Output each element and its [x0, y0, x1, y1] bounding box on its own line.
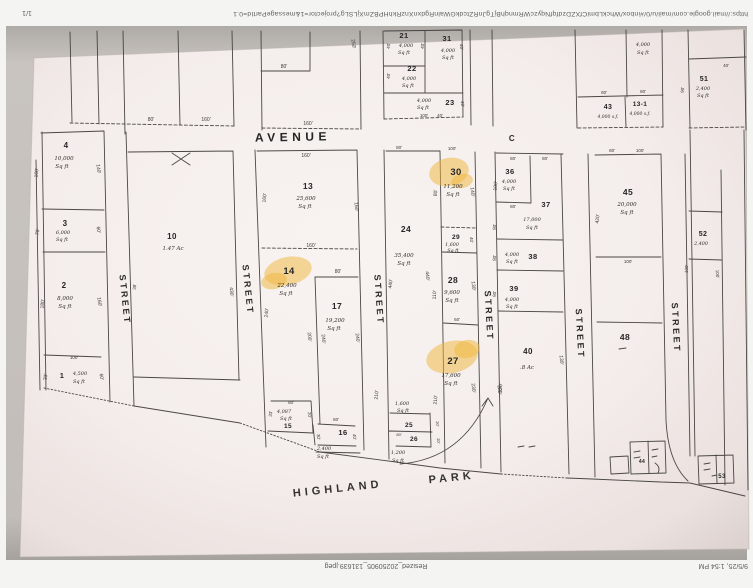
lot-23: 23 [445, 98, 454, 107]
avenue-c-label: C [509, 134, 517, 143]
map-text-4000: 4,000 [504, 252, 520, 258]
map-text-4500: 4,500 [72, 371, 88, 377]
footer-timestamp: 9/5/25, 1:54 PM [662, 561, 748, 570]
map-text-Sqft: Sq ft [58, 304, 72, 310]
map-text-80: 80' [510, 204, 516, 209]
map-text-1600: 1,600 [395, 401, 410, 407]
lot-25: 25 [405, 422, 413, 429]
map-text-80: 80' [148, 117, 155, 123]
map-text-22400: 22,400 [276, 283, 297, 289]
map-text-80: 80' [281, 64, 288, 70]
map-text-8Ac: .8 Ac [520, 365, 534, 371]
map-text-Sqft: Sq ft [506, 259, 519, 265]
map-text-Sqft: Sq ft [446, 192, 460, 198]
map-text-Sqft: Sq ft [298, 204, 312, 210]
map-text-40: 40' [459, 44, 464, 50]
map-text-60: 60' [454, 317, 460, 322]
map-text-180: 180' [40, 299, 47, 309]
map-text-240: 240' [354, 333, 361, 343]
map-text-100: 100' [70, 355, 79, 360]
map-text-4000: 4,000 [635, 42, 651, 48]
map-text-100: 100' [493, 181, 500, 191]
footer-filename: Resized_20250905_131639.jpeg [295, 561, 457, 570]
map-text-20: 20' [435, 421, 440, 427]
map-text-40: 40' [437, 113, 443, 118]
map-text-420: 420' [595, 214, 602, 224]
map-text-200: 200' [306, 332, 313, 342]
map-text-100: 100' [420, 113, 429, 118]
lot-1: 1 [60, 371, 65, 380]
map-text-250: 250' [350, 39, 357, 49]
map-text-40: 40' [352, 434, 358, 440]
map-text-80: 80' [492, 224, 497, 230]
map-text-140: 140' [469, 187, 476, 197]
lot-10: 10 [167, 232, 177, 241]
map-text-100: 100' [636, 148, 645, 153]
lot-30: 30 [450, 167, 461, 178]
lot-14: 14 [283, 266, 295, 277]
map-text-4000: 4,000 [440, 48, 456, 54]
map-text-Sqft: Sq ft [444, 381, 458, 387]
map-text-160: 160' [301, 153, 310, 159]
map-text-Sqft: Sq ft [73, 379, 86, 385]
map-text-38: 38' [132, 284, 138, 290]
map-text-80: 80' [433, 189, 439, 196]
map-text-Sqft: Sq ft [447, 248, 459, 254]
map-text-40: 40' [386, 43, 391, 49]
map-text-40: 40' [469, 237, 474, 243]
map-text-Sqft: Sq ft [279, 291, 293, 297]
map-text-4000: 4,000 [416, 98, 432, 104]
map-text-130: 130' [558, 355, 565, 365]
map-text-160: 160' [201, 117, 210, 123]
lot-28: 28 [448, 275, 458, 285]
lot-36: 36 [505, 167, 514, 176]
map-text-17600: 17,600 [441, 373, 461, 379]
map-text-1200: 1,200 [391, 450, 406, 456]
map-text-4087: 4,087 [276, 409, 292, 415]
map-text-80: 80' [333, 417, 339, 422]
map-text-4000sf: 4,000 s.f. [629, 111, 652, 117]
map-text-Sqft: Sq ft [442, 55, 455, 61]
map-text-4000: 4,000 [401, 76, 417, 82]
map-text-Sqft: Sq ft [327, 326, 341, 332]
map-text-120: 120' [498, 383, 505, 393]
map-text-60: 60' [98, 373, 105, 380]
map-text-Sqft: Sq ft [55, 164, 69, 170]
map-text-440: 440' [424, 271, 431, 281]
lot-40: 40 [523, 347, 533, 356]
lot-3: 3 [63, 219, 68, 228]
map-text-30: 30' [316, 434, 322, 440]
map-text-40: 40' [386, 73, 391, 79]
map-text-240: 240' [320, 334, 327, 344]
map-text-160: 160' [262, 193, 269, 203]
map-text-19200: 19,200 [325, 318, 345, 324]
lot-21: 21 [399, 31, 408, 40]
map-text-160: 160' [306, 243, 315, 249]
map-text-1600: 1,600 [445, 242, 459, 248]
map-text-160: 160' [353, 202, 360, 212]
map-text-9600: 9,600 [444, 290, 460, 296]
map-text-17000: 17,000 [523, 217, 541, 223]
map-text-100: 100' [715, 270, 721, 279]
map-text-70: 70' [35, 228, 42, 235]
lot-53: 53 [718, 474, 726, 480]
map-text-Sqft: Sq ft [402, 83, 415, 89]
lot-16: 16 [338, 428, 347, 437]
map-text-80: 80' [609, 148, 615, 153]
lot-29: 29 [452, 234, 460, 241]
lot-27: 27 [447, 356, 458, 367]
map-text-440: 440' [388, 279, 395, 289]
map-text-140: 140' [95, 164, 102, 174]
map-text-80: 80' [542, 156, 548, 161]
map-text-Sqft: Sq ft [392, 458, 405, 464]
map-text-8000: 8,000 [57, 296, 73, 302]
map-text-160: 160' [96, 297, 103, 307]
lot-13-1: 13-1 [633, 101, 648, 108]
map-text-160: 160' [34, 168, 41, 178]
map-text-Sqft: Sq ft [397, 261, 411, 267]
map-text-147Ac: 1.47 Ac [162, 246, 183, 252]
map-text-Sqft: Sq ft [697, 93, 710, 99]
map-text-80: 80' [335, 269, 342, 275]
map-text-Sqft: Sq ft [620, 210, 634, 216]
map-text-20: 20' [307, 412, 313, 418]
map-text-4000: 4,000 [504, 297, 520, 303]
lot-24: 24 [401, 224, 411, 234]
lot-37: 37 [541, 200, 550, 209]
map-text-80: 80' [288, 400, 294, 405]
map-text-430: 430' [228, 287, 235, 297]
scanned-plat-map: AVENUECSTREETSTREETSTREETSTREETSTREETSTR… [0, 0, 753, 588]
map-text-100: 100' [624, 259, 633, 264]
map-text-Sqft: Sq ft [317, 454, 330, 460]
map-text-Sqft: Sq ft [417, 105, 430, 111]
map-text-80: 80' [510, 156, 516, 161]
map-text-160: 160' [303, 121, 312, 127]
map-text-80: 80' [492, 291, 497, 297]
lot-13: 13 [303, 181, 313, 191]
map-text-20: 20' [436, 438, 441, 444]
map-text-20000: 20,000 [616, 202, 637, 208]
map-text-230: 230' [470, 383, 477, 393]
map-text-33: 33' [43, 373, 50, 380]
map-text-4000sf: 4,000 s.f. [597, 114, 620, 120]
map-text-40: 40' [723, 63, 729, 68]
map-text-90: 90' [680, 87, 685, 93]
map-text-40: 40' [460, 101, 465, 107]
map-text-240: 240' [264, 308, 271, 318]
map-text-2400: 2,400 [316, 446, 332, 452]
map-text-80: 80' [492, 255, 497, 261]
lot-39: 39 [509, 284, 518, 293]
map-text-25600: 25,600 [295, 196, 316, 202]
map-text-Sqft: Sq ft [280, 416, 293, 422]
map-text-80: 80' [601, 90, 607, 95]
map-text-Sqft: Sq ft [506, 304, 519, 310]
lot-43: 43 [604, 104, 613, 111]
map-text-4000: 4,000 [501, 179, 517, 185]
lot-45: 45 [623, 187, 633, 197]
map-text-2400: 2,400 [695, 86, 711, 92]
lot-31: 31 [442, 34, 451, 43]
map-text-100: 100' [448, 146, 457, 151]
map-text-80: 80' [396, 432, 401, 437]
map-text-110: 110' [432, 290, 439, 299]
map-text-130: 130' [470, 281, 477, 291]
map-text-210: 210' [433, 395, 440, 405]
map-text-Sqft: Sq ft [56, 237, 69, 243]
lot-22: 22 [407, 64, 416, 73]
lot-4: 4 [64, 141, 69, 150]
lot-52: 52 [699, 231, 708, 238]
map-text-100: 100' [684, 264, 690, 273]
map-text-44: 44 [639, 459, 645, 465]
lot-48: 48 [620, 332, 630, 342]
lot-17: 17 [332, 301, 342, 311]
lot-38: 38 [528, 252, 537, 261]
map-text-Sqft: Sq ft [503, 186, 516, 192]
map-text-2400: 2,400 [693, 241, 708, 247]
map-text-40: 40' [420, 43, 425, 49]
lot-51: 51 [700, 76, 709, 83]
map-text-210: 210' [374, 390, 381, 400]
map-text-80: 80' [396, 145, 402, 150]
avenue-label: AVENUE [255, 129, 331, 144]
map-text-Sqft: Sq ft [637, 50, 650, 56]
lot-26: 26 [410, 436, 418, 443]
map-text-11200: 11,200 [443, 184, 463, 190]
map-text-6000: 6,000 [56, 230, 71, 236]
map-text-33: 33' [268, 411, 274, 417]
map-text-4000: 4,000 [398, 43, 414, 49]
map-text-10000: 10,000 [54, 156, 74, 162]
map-text-Sqft: Sq ft [398, 50, 411, 56]
lot-15: 15 [284, 423, 292, 430]
map-text-35400: 35,400 [394, 253, 414, 259]
map-text-80: 80' [640, 89, 646, 94]
map-text-Sqft: Sq ft [397, 408, 410, 414]
lot-2: 2 [62, 281, 67, 290]
map-text-60: 60' [95, 226, 102, 233]
map-text-Sqft: Sq ft [526, 225, 539, 231]
map-text-Sqft: Sq ft [445, 298, 459, 304]
